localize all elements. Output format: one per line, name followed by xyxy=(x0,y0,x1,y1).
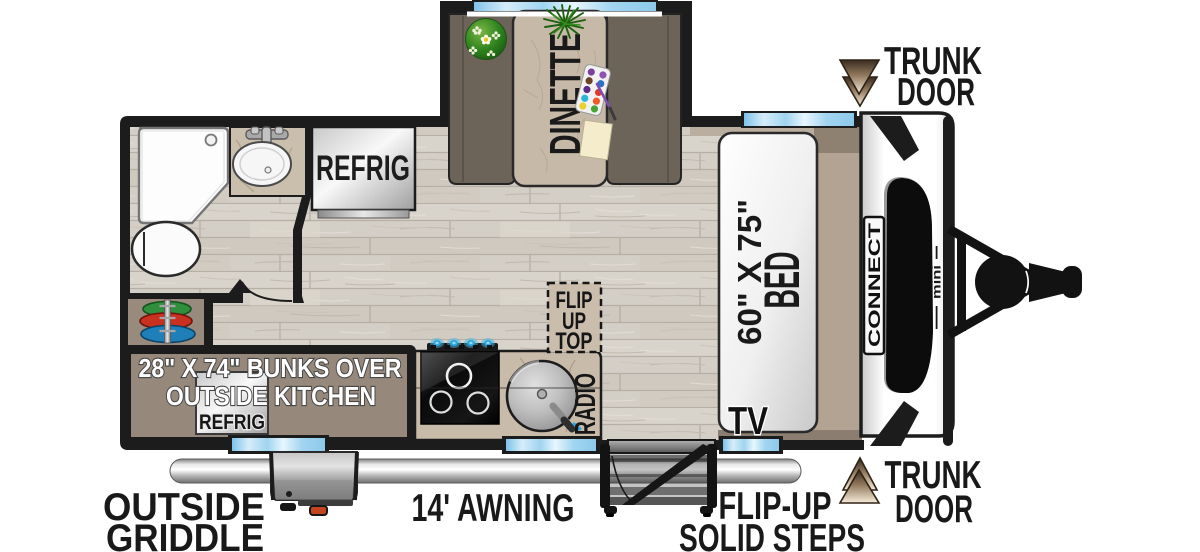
svg-text:OUTSIDE KITCHEN: OUTSIDE KITCHEN xyxy=(166,381,376,411)
svg-text:REFRIG: REFRIG xyxy=(316,149,410,188)
svg-text:RADIO: RADIO xyxy=(570,373,602,435)
svg-text:mini: mini xyxy=(930,265,944,299)
svg-text:28" X 74" BUNKS OVER: 28" X 74" BUNKS OVER xyxy=(139,353,402,383)
svg-text:DOOR: DOOR xyxy=(895,488,973,531)
svg-text:GRIDDLE: GRIDDLE xyxy=(106,517,264,552)
svg-text:SOLID STEPS: SOLID STEPS xyxy=(679,517,865,552)
svg-text:14' AWNING: 14' AWNING xyxy=(412,487,575,530)
svg-text:CONNECT: CONNECT xyxy=(865,222,884,347)
svg-text:DOOR: DOOR xyxy=(897,71,975,114)
svg-text:TOP: TOP xyxy=(556,328,593,355)
svg-text:BED: BED xyxy=(754,252,810,309)
svg-text:REFRIG: REFRIG xyxy=(199,411,265,434)
